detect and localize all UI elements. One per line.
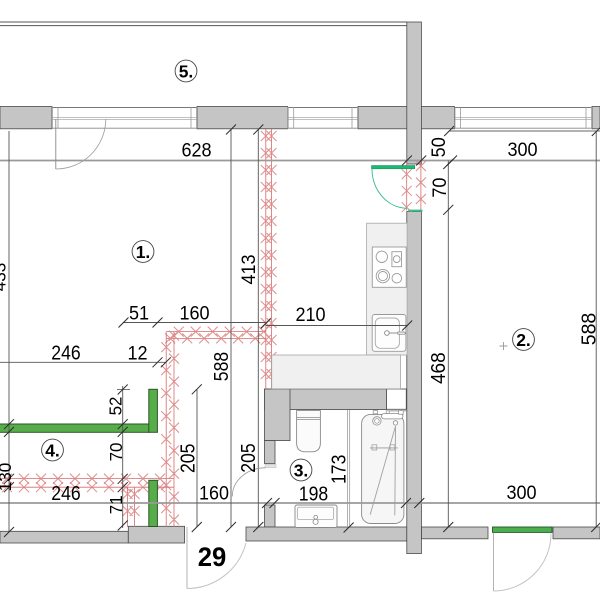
svg-text:1.: 1. (136, 242, 151, 262)
svg-text:70: 70 (428, 178, 450, 198)
svg-text:468: 468 (427, 352, 450, 384)
svg-text:205: 205 (178, 444, 201, 473)
svg-text:300: 300 (506, 482, 536, 504)
svg-text:51: 51 (129, 302, 149, 324)
svg-text:160: 160 (179, 302, 209, 324)
svg-text:160: 160 (199, 482, 229, 504)
svg-text:433: 433 (0, 263, 10, 292)
svg-text:300: 300 (507, 139, 537, 161)
svg-text:205: 205 (238, 443, 261, 472)
svg-text:628: 628 (181, 139, 211, 161)
svg-text:4.: 4. (45, 440, 60, 460)
svg-text:246: 246 (51, 342, 80, 365)
svg-text:29: 29 (198, 541, 227, 572)
svg-text:71: 71 (105, 495, 126, 514)
svg-text:413: 413 (238, 254, 260, 284)
svg-text:5.: 5. (179, 61, 194, 81)
svg-text:50: 50 (427, 137, 449, 157)
svg-text:12: 12 (127, 342, 147, 364)
svg-text:130: 130 (0, 463, 15, 492)
svg-text:173: 173 (328, 455, 351, 484)
svg-text:588: 588 (578, 313, 600, 345)
svg-text:588: 588 (211, 352, 234, 381)
svg-text:246: 246 (51, 483, 80, 506)
svg-text:198: 198 (299, 483, 328, 506)
svg-text:2.: 2. (516, 330, 531, 350)
svg-text:3.: 3. (294, 460, 309, 480)
svg-text:52: 52 (105, 397, 126, 416)
svg-text:210: 210 (295, 304, 325, 326)
svg-text:70: 70 (105, 443, 126, 462)
